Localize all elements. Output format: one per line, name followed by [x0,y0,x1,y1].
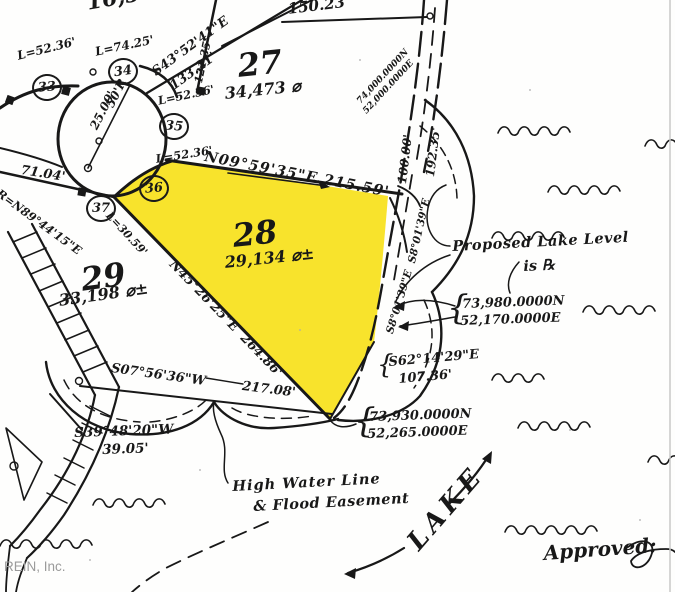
lot-27-number: 27 [236,45,284,81]
coord-73980n: 73,980.0000N [462,294,565,311]
bearing-s39: S39°48'20"W [74,424,174,441]
rein-watermark: REIN, Inc. [4,560,66,574]
note-proposed-lake-2: is ℞ [523,258,555,274]
dist-39-05: 39.05' [102,442,149,457]
coord-52170e: 52,170.0000E [460,311,561,327]
corner-marker-37: 37 [86,195,116,222]
coord-52265e: 52,265.0000E [367,424,468,440]
flood-easement-dashed-line [132,522,268,592]
coord-73930n: 73,930.0000N [369,407,472,424]
lot-28-number: 28 [231,215,279,251]
plat-map: 16,503 ⌀150.23'2734,473 ⌀L=52.36'L=74.25… [0,0,675,592]
